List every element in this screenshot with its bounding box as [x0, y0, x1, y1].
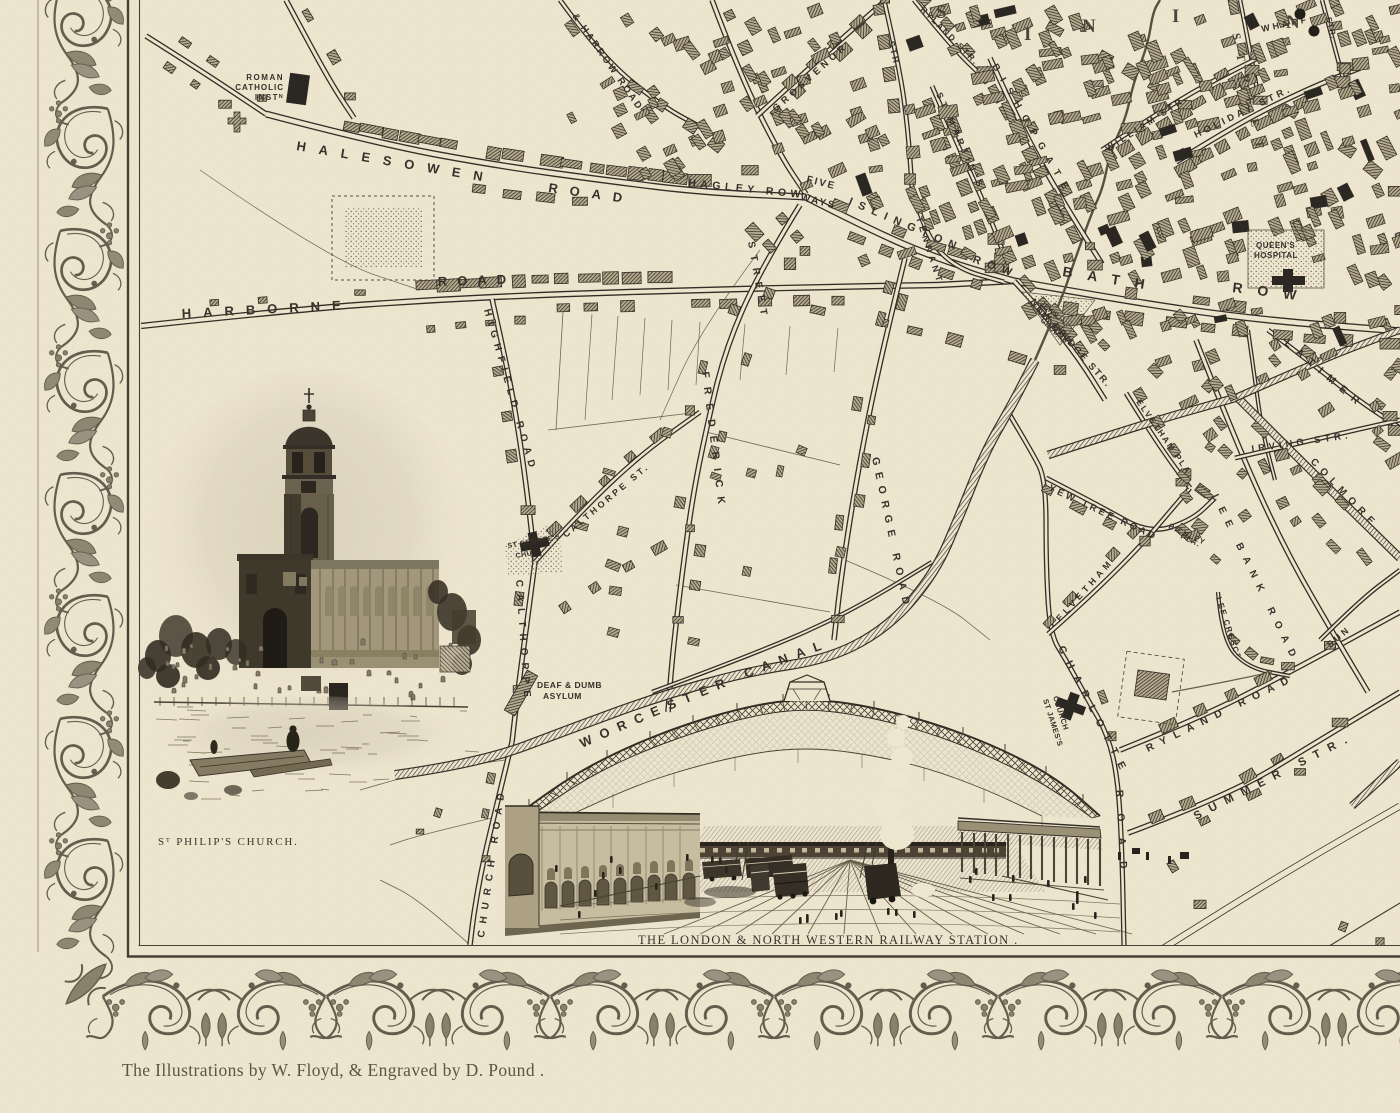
- svg-text:ROAD: ROAD: [438, 271, 517, 289]
- svg-text:S: S: [936, 2, 947, 23]
- svg-text:INSTᴺ: INSTᴺ: [255, 93, 284, 102]
- svg-text:HOSPITAL: HOSPITAL: [1254, 251, 1298, 260]
- svg-text:ASYLUM: ASYLUM: [543, 691, 582, 701]
- svg-text:CATHOLIC: CATHOLIC: [235, 83, 284, 92]
- svg-text:THE LONDON & NORTH WESTERN RAI: THE LONDON & NORTH WESTERN RAILWAY STATI…: [638, 933, 1019, 947]
- svg-text:QUEEN'S: QUEEN'S: [1256, 241, 1295, 250]
- svg-text:ROMAN: ROMAN: [246, 73, 284, 82]
- svg-text:Sᵀ PHILIP'S CHURCH.: Sᵀ PHILIP'S CHURCH.: [158, 836, 299, 848]
- svg-text:I: I: [1172, 6, 1179, 27]
- svg-text:The Illustrations by W. Floyd,: The Illustrations by W. Floyd, & Engrave…: [122, 1060, 545, 1080]
- svg-text:DEAF & DUMB: DEAF & DUMB: [537, 680, 602, 690]
- svg-text:N: N: [1082, 16, 1096, 37]
- svg-text:I: I: [1024, 24, 1031, 45]
